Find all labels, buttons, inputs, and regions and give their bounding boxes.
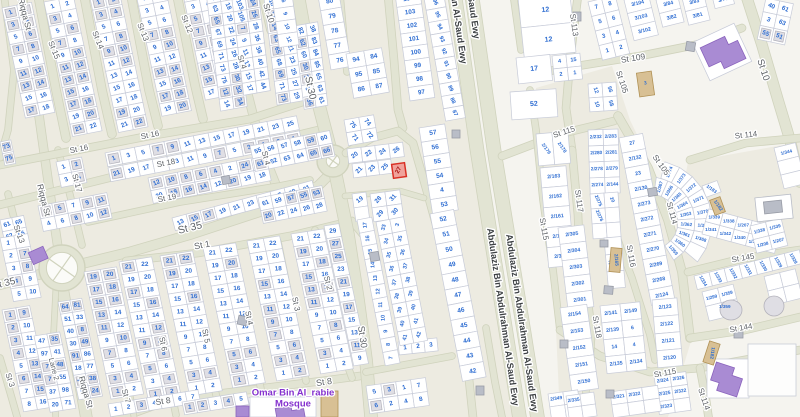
- svg-text:16: 16: [149, 299, 157, 306]
- svg-text:17: 17: [258, 268, 266, 275]
- svg-text:14: 14: [34, 373, 42, 380]
- svg-text:17: 17: [345, 304, 353, 311]
- svg-text:2/123: 2/123: [658, 304, 672, 311]
- svg-text:10: 10: [120, 335, 128, 342]
- svg-text:19: 19: [168, 270, 176, 277]
- svg-text:2/144: 2/144: [606, 181, 619, 187]
- svg-text:12: 12: [155, 325, 163, 332]
- svg-text:1/341: 1/341: [705, 227, 717, 232]
- svg-text:19: 19: [211, 262, 219, 269]
- svg-text:13: 13: [263, 293, 271, 300]
- svg-text:64: 64: [61, 304, 69, 311]
- svg-text:14: 14: [152, 312, 160, 319]
- svg-text:22: 22: [182, 255, 190, 262]
- svg-text:40: 40: [67, 328, 75, 335]
- svg-text:Mosque: Mosque: [275, 399, 311, 410]
- svg-text:52: 52: [530, 101, 538, 109]
- svg-text:30: 30: [69, 340, 77, 347]
- svg-text:29: 29: [329, 228, 337, 235]
- svg-text:16: 16: [365, 235, 371, 241]
- svg-text:15: 15: [37, 386, 45, 393]
- svg-text:2/274: 2/274: [591, 182, 604, 188]
- svg-text:2/162: 2/162: [549, 193, 563, 200]
- svg-text:35: 35: [51, 336, 59, 343]
- svg-text:15: 15: [217, 288, 225, 295]
- svg-text:22: 22: [313, 233, 321, 240]
- svg-text:1/338: 1/338: [723, 218, 735, 223]
- svg-text:1/342: 1/342: [720, 231, 732, 236]
- svg-text:13: 13: [98, 312, 106, 319]
- svg-text:54: 54: [436, 172, 445, 180]
- svg-text:41: 41: [54, 349, 62, 356]
- svg-text:22: 22: [269, 240, 277, 247]
- svg-text:15: 15: [261, 281, 269, 288]
- svg-text:15: 15: [133, 302, 141, 309]
- svg-text:15: 15: [305, 274, 313, 281]
- svg-text:51: 51: [64, 316, 72, 323]
- svg-text:16: 16: [39, 399, 47, 406]
- svg-text:14: 14: [280, 291, 288, 298]
- svg-text:25: 25: [334, 253, 342, 260]
- svg-text:10: 10: [381, 315, 387, 321]
- svg-text:12: 12: [117, 322, 125, 329]
- svg-text:1: 1: [573, 70, 577, 76]
- svg-text:12: 12: [283, 304, 291, 311]
- svg-text:14: 14: [114, 309, 122, 316]
- svg-text:17: 17: [92, 286, 100, 293]
- svg-text:16: 16: [277, 278, 285, 285]
- svg-text:13: 13: [135, 314, 143, 321]
- svg-text:18: 18: [230, 272, 238, 279]
- svg-text:12: 12: [196, 319, 204, 326]
- svg-text:13: 13: [373, 275, 379, 281]
- svg-text:11: 11: [222, 313, 230, 320]
- svg-text:14: 14: [236, 298, 244, 305]
- svg-text:2/121: 2/121: [661, 338, 675, 345]
- svg-text:18: 18: [187, 280, 195, 287]
- svg-text:10: 10: [285, 316, 293, 323]
- svg-text:1/339: 1/339: [709, 215, 721, 220]
- svg-text:10: 10: [329, 309, 337, 316]
- svg-text:19: 19: [343, 291, 351, 298]
- svg-text:13: 13: [31, 360, 39, 367]
- svg-text:12: 12: [29, 348, 37, 355]
- svg-text:13: 13: [176, 308, 184, 315]
- svg-text:11: 11: [101, 324, 109, 331]
- svg-text:20: 20: [106, 271, 114, 278]
- svg-text:15: 15: [174, 296, 182, 303]
- svg-text:20: 20: [144, 274, 152, 281]
- svg-text:2/120: 2/120: [663, 355, 677, 362]
- svg-text:12: 12: [541, 6, 550, 14]
- svg-text:2/278: 2/278: [591, 166, 604, 172]
- svg-text:2/232: 2/232: [590, 134, 603, 140]
- svg-text:71: 71: [64, 399, 72, 406]
- svg-text:21: 21: [166, 258, 174, 265]
- svg-text:11: 11: [138, 327, 146, 334]
- svg-text:18: 18: [74, 365, 82, 372]
- svg-text:49: 49: [81, 338, 89, 345]
- svg-text:47: 47: [38, 338, 46, 345]
- svg-text:16: 16: [190, 293, 198, 300]
- svg-text:21: 21: [125, 264, 133, 271]
- svg-text:9: 9: [383, 330, 389, 333]
- svg-text:2/122: 2/122: [660, 321, 674, 328]
- svg-text:21: 21: [340, 279, 348, 286]
- svg-text:56: 56: [431, 143, 440, 151]
- svg-text:19: 19: [127, 276, 135, 283]
- svg-text:21: 21: [297, 236, 305, 243]
- svg-text:16: 16: [111, 296, 119, 303]
- svg-text:100: 100: [410, 48, 422, 56]
- svg-text:55: 55: [433, 158, 442, 166]
- svg-text:2/283: 2/283: [605, 133, 618, 139]
- svg-text:1/207: 1/207: [738, 222, 750, 227]
- svg-text:2/161: 2/161: [551, 213, 565, 220]
- svg-text:13: 13: [307, 286, 315, 293]
- svg-text:17: 17: [214, 275, 222, 282]
- svg-text:17: 17: [302, 261, 310, 268]
- svg-text:81: 81: [73, 302, 81, 309]
- svg-text:18: 18: [146, 286, 154, 293]
- svg-text:77: 77: [86, 363, 94, 370]
- svg-text:27: 27: [332, 240, 340, 247]
- svg-text:18: 18: [318, 258, 326, 265]
- svg-text:17: 17: [363, 222, 369, 228]
- svg-text:11: 11: [310, 299, 318, 306]
- svg-text:16: 16: [233, 285, 241, 292]
- svg-text:15: 15: [95, 299, 103, 306]
- svg-text:2/163: 2/163: [547, 173, 561, 180]
- svg-text:7: 7: [388, 356, 394, 359]
- svg-text:22: 22: [225, 247, 233, 254]
- svg-text:20: 20: [228, 260, 236, 267]
- svg-text:1/362: 1/362: [680, 221, 692, 227]
- svg-text:86: 86: [84, 351, 92, 358]
- svg-text:17: 17: [171, 283, 179, 290]
- svg-text:21: 21: [253, 243, 261, 250]
- svg-text:10: 10: [29, 288, 37, 295]
- svg-text:53: 53: [440, 201, 449, 209]
- svg-text:20: 20: [52, 401, 60, 408]
- svg-text:18: 18: [274, 265, 282, 272]
- svg-text:33: 33: [76, 314, 84, 321]
- svg-text:97: 97: [41, 351, 49, 358]
- svg-text:20: 20: [185, 268, 193, 275]
- svg-text:22: 22: [141, 261, 149, 268]
- svg-text:1/340: 1/340: [734, 235, 746, 240]
- svg-text:19: 19: [255, 255, 263, 262]
- svg-text:10: 10: [23, 322, 31, 329]
- svg-text:2/165: 2/165: [612, 254, 619, 267]
- svg-text:12: 12: [544, 36, 553, 44]
- svg-text:38: 38: [89, 375, 97, 382]
- svg-text:14: 14: [611, 344, 617, 351]
- svg-text:98: 98: [62, 387, 70, 394]
- svg-text:12: 12: [327, 297, 335, 304]
- svg-text:14: 14: [193, 306, 201, 313]
- svg-text:20: 20: [272, 253, 280, 260]
- svg-text:24: 24: [92, 387, 100, 394]
- svg-text:12: 12: [375, 288, 381, 294]
- svg-text:91: 91: [72, 352, 80, 359]
- svg-text:15: 15: [348, 317, 356, 324]
- svg-text:19: 19: [90, 274, 98, 281]
- svg-text:8: 8: [386, 343, 392, 346]
- svg-text:11: 11: [266, 306, 274, 313]
- svg-text:2: 2: [559, 72, 563, 78]
- svg-text:18: 18: [109, 284, 117, 291]
- svg-text:102: 102: [406, 21, 418, 29]
- svg-text:2/280: 2/280: [590, 150, 603, 156]
- svg-text:11: 11: [26, 335, 33, 342]
- svg-text:20: 20: [316, 246, 324, 253]
- svg-text:19: 19: [299, 248, 307, 255]
- svg-text:2/279: 2/279: [606, 165, 619, 171]
- svg-text:15: 15: [570, 57, 577, 64]
- svg-text:13: 13: [219, 300, 227, 307]
- svg-text:17: 17: [530, 65, 539, 73]
- svg-text:57: 57: [429, 129, 438, 137]
- svg-text:21: 21: [209, 250, 217, 257]
- svg-text:2/281: 2/281: [605, 149, 618, 155]
- svg-text:11: 11: [179, 321, 187, 328]
- svg-text:37: 37: [49, 389, 57, 396]
- svg-text:23: 23: [337, 266, 345, 273]
- svg-text:11: 11: [378, 302, 384, 308]
- svg-text:1/359: 1/359: [719, 304, 731, 309]
- svg-text:Omar Bin Al_rabie: Omar Bin Al_rabie: [252, 388, 335, 399]
- svg-text:17: 17: [130, 289, 138, 296]
